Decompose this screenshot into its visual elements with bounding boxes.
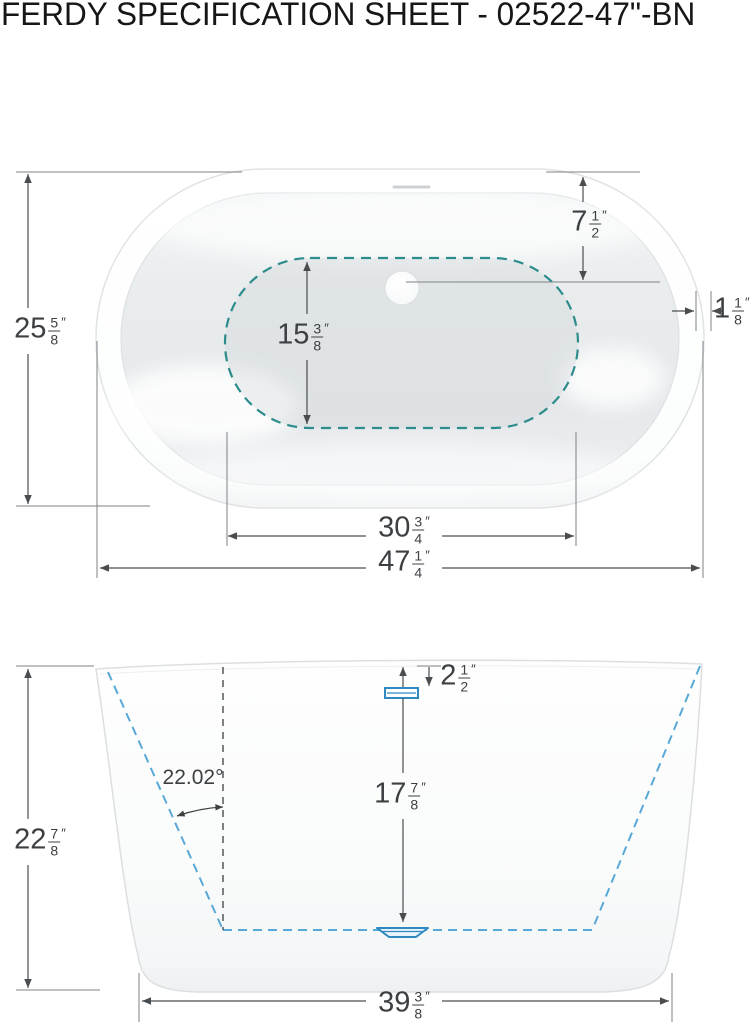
dim-basin-width-label: 15 38 ″ bbox=[277, 322, 329, 353]
dim-tub-width-label: 25 58 ″ bbox=[14, 316, 66, 347]
dim-basin-length-label: 30 34 ″ bbox=[378, 515, 430, 546]
dim-overflow-drop-label: 2 12 ″ bbox=[440, 663, 476, 694]
specification-sheet: FERDY SPECIFICATION SHEET - 02522-47"-BN bbox=[0, 0, 753, 1024]
tub-profile-outline bbox=[96, 660, 702, 992]
overflow-fitting bbox=[385, 688, 418, 698]
dim-base-length-label: 39 38 ″ bbox=[378, 990, 430, 1021]
dim-water-depth-label: 17 78 ″ bbox=[374, 781, 426, 812]
dim-overall-length-label: 47 14 ″ bbox=[378, 549, 430, 580]
spec-drawing bbox=[0, 0, 753, 1024]
drain-top-view bbox=[385, 271, 419, 305]
wall-angle-label: 22.02° bbox=[163, 766, 224, 790]
dim-drain-offset-label: 7 12 ″ bbox=[571, 209, 607, 240]
dim-rim-width-label: 1 18 ″ bbox=[714, 296, 750, 327]
dim-overall-height-label: 22 78 ″ bbox=[14, 827, 66, 858]
top-view bbox=[16, 169, 722, 578]
side-view bbox=[16, 660, 702, 1022]
